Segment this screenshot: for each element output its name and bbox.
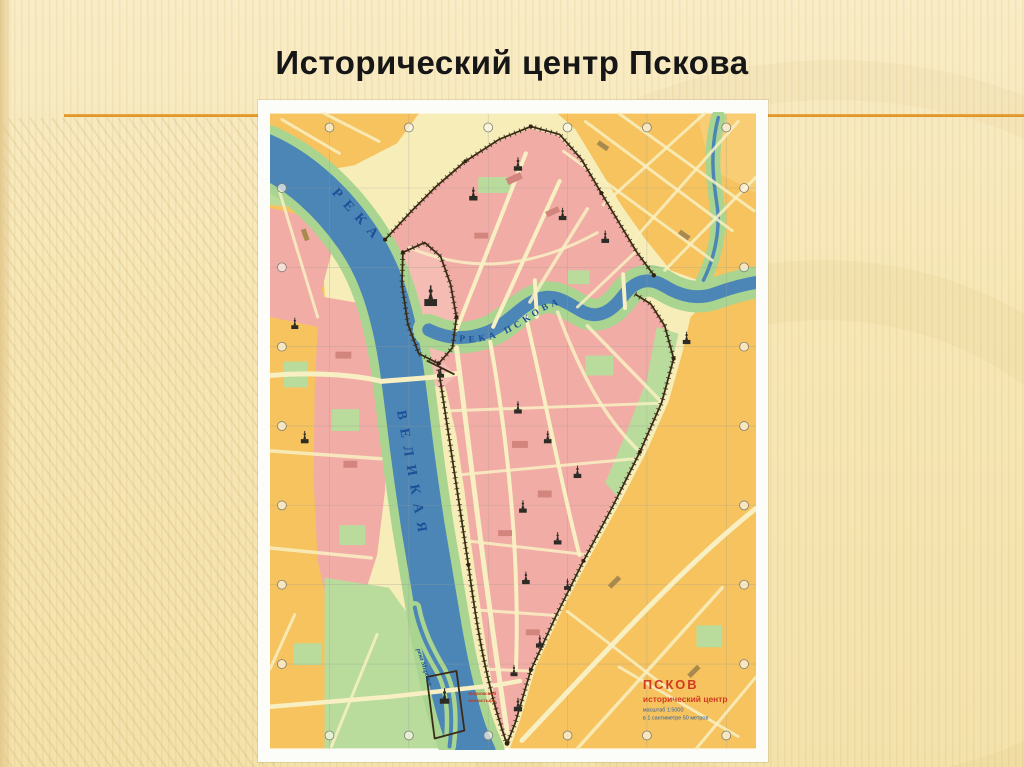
slide-title: Исторический центр Пскова xyxy=(0,44,1024,82)
legend-city-name: ПСКОВ xyxy=(643,677,699,692)
map-image-panel: РЕКА ВЕЛИКАЯ РЕКА ПСКОВА река Мирожа Мир… xyxy=(258,100,768,762)
legend-scale: масштаб 1:5000 xyxy=(643,708,684,714)
monastery-label-1: Мирожский xyxy=(468,690,496,697)
left-edge-shading xyxy=(0,0,12,767)
legend-scale-note: в 1 сантиметре 50 метров xyxy=(643,716,709,722)
monastery-label-2: монастырь xyxy=(468,699,496,704)
slide: Исторический центр Пскова xyxy=(0,0,1024,767)
background-diagonal-stripes xyxy=(0,118,275,767)
pskov-city-map: РЕКА ВЕЛИКАЯ РЕКА ПСКОВА река Мирожа Мир… xyxy=(270,112,756,750)
legend-subtitle: исторический центр xyxy=(643,694,728,704)
